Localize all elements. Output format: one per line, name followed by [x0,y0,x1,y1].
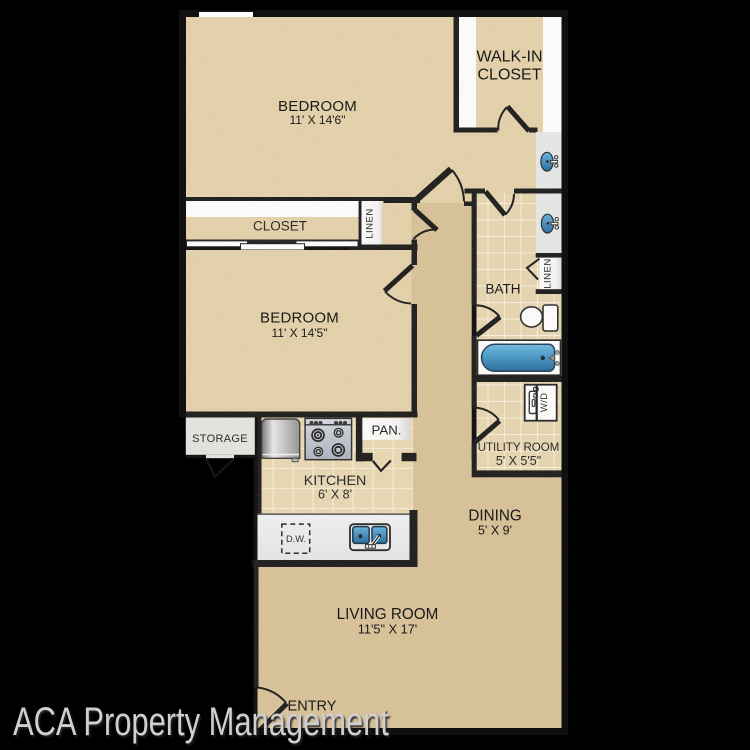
svg-text:DINING: DINING [468,508,521,525]
svg-text:BEDROOM: BEDROOM [260,310,339,327]
svg-text:CLOSET: CLOSET [477,67,541,84]
svg-text:5' X 9': 5' X 9' [478,524,512,538]
svg-text:11' X 14'6": 11' X 14'6" [290,113,346,127]
svg-text:WALK-IN: WALK-IN [476,49,542,66]
svg-text:BATH: BATH [485,282,520,297]
svg-text:11' X 14'5": 11' X 14'5" [272,326,328,340]
svg-text:11'5" X 17': 11'5" X 17' [358,622,418,637]
